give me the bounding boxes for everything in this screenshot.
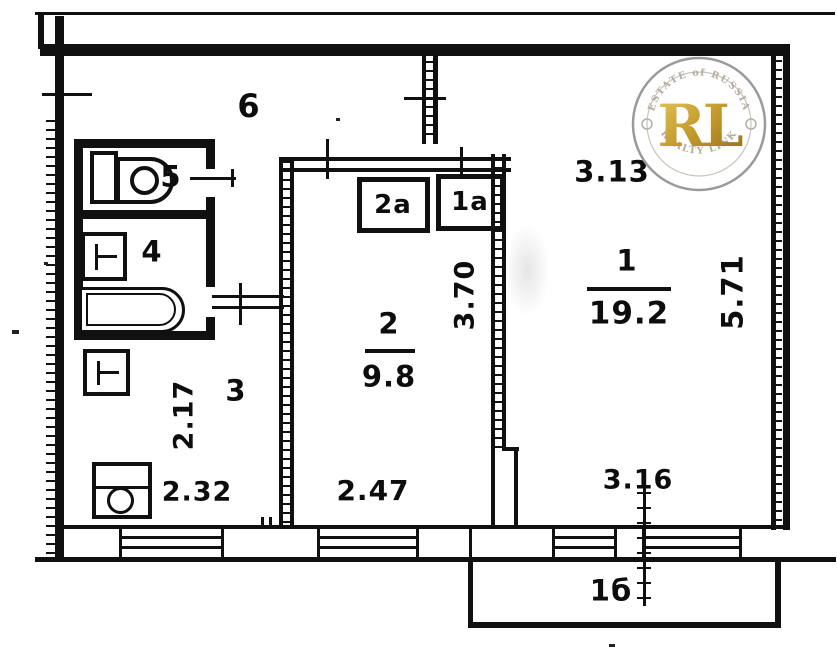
room1-number: 1	[616, 247, 637, 276]
window-segment	[122, 536, 221, 539]
wall-hatching	[776, 60, 782, 526]
dimension-tick	[42, 93, 92, 96]
wall-segment	[74, 139, 215, 148]
balcony-wall	[468, 622, 781, 628]
window-segment	[645, 536, 739, 539]
window-mullion	[552, 525, 555, 562]
room-label-wc: 5	[160, 163, 181, 192]
balcony-wall	[468, 561, 473, 627]
dim-kitchen-height: 2.17	[171, 380, 198, 451]
scan-speck	[609, 644, 615, 647]
scan-speck	[336, 118, 340, 121]
dim-balcony-width: 3.16	[603, 467, 674, 494]
wall-hatching	[426, 52, 433, 140]
room-label-bath: 4	[141, 238, 162, 267]
dim-room2-width: 2.47	[336, 477, 409, 505]
wall-hatching	[261, 517, 264, 527]
wall-hatching	[46, 120, 55, 558]
closet-label-2a: 2а	[374, 192, 412, 218]
sink-tap-icon	[98, 255, 117, 258]
window-mullion	[614, 525, 617, 562]
wall-hatching	[283, 161, 290, 524]
window-mullion	[221, 525, 224, 562]
fraction-bar	[365, 349, 415, 353]
dim-room1-height: 5.71	[719, 254, 748, 330]
wall-segment	[206, 139, 215, 169]
dimension-tick	[326, 139, 329, 179]
wall-segment	[206, 317, 215, 340]
window-segment	[320, 546, 416, 549]
window-segment	[555, 536, 614, 539]
dimension-tick	[239, 283, 242, 325]
scan-smudge	[504, 224, 550, 316]
scan-speck	[12, 330, 19, 334]
room2-number: 2	[378, 310, 399, 339]
closet-label-1a: 1а	[451, 189, 489, 215]
wall-segment	[206, 197, 215, 287]
scan-speck	[44, 262, 48, 265]
sink-tap-icon	[100, 371, 119, 374]
balcony-label: 1б	[590, 577, 632, 606]
window-mullion	[469, 525, 472, 562]
window-segment	[320, 536, 416, 539]
fraction-bar	[587, 287, 671, 291]
wall-hatching	[495, 158, 502, 448]
dimension-tick	[404, 97, 446, 100]
room-label-hall: 6	[237, 90, 260, 122]
wall-hatching	[269, 517, 272, 527]
wall-segment	[63, 525, 784, 529]
dim-room2-height: 3.70	[452, 260, 479, 331]
wall-segment	[212, 306, 284, 309]
wall-segment	[290, 157, 294, 528]
wall-segment	[55, 16, 64, 562]
stove-burner	[107, 487, 134, 514]
dim-kitchen-width: 2.32	[162, 479, 233, 506]
room2-area: 9.8	[362, 363, 416, 392]
dimension-tick	[231, 169, 234, 187]
window-mullion	[119, 525, 122, 562]
window-segment	[555, 546, 614, 549]
window-mullion	[416, 525, 419, 562]
dimension-line	[643, 486, 646, 606]
window-mullion	[739, 525, 742, 562]
toilet-cistern	[90, 151, 118, 204]
room1-area: 19.2	[589, 299, 670, 330]
watermark-logo: ESTATE of RUSSIA REALTY LINK RL	[630, 55, 768, 193]
wall-segment	[433, 48, 438, 144]
bathtub-inner	[86, 293, 176, 326]
window-segment	[645, 546, 739, 549]
wall-segment	[35, 12, 835, 15]
wall-segment	[74, 210, 215, 219]
window-segment	[122, 546, 221, 549]
watermark-monogram: RL	[658, 92, 743, 160]
wall-segment	[279, 168, 511, 172]
wall-segment	[279, 157, 511, 161]
dimension-tick	[190, 177, 236, 180]
wall-segment	[35, 557, 836, 562]
toilet-bowl-inner	[130, 166, 159, 195]
wall-segment	[783, 44, 790, 530]
wall-segment	[212, 295, 284, 298]
wall-segment	[514, 449, 518, 528]
floor-plan-canvas: 6 5 4 3 2а 1а 1б 2 9.8 1 19.2 3.13 5.71 …	[0, 0, 837, 650]
room-label-kitchen: 3	[225, 377, 246, 406]
window-mullion	[317, 525, 320, 562]
balcony-wall	[775, 561, 781, 627]
